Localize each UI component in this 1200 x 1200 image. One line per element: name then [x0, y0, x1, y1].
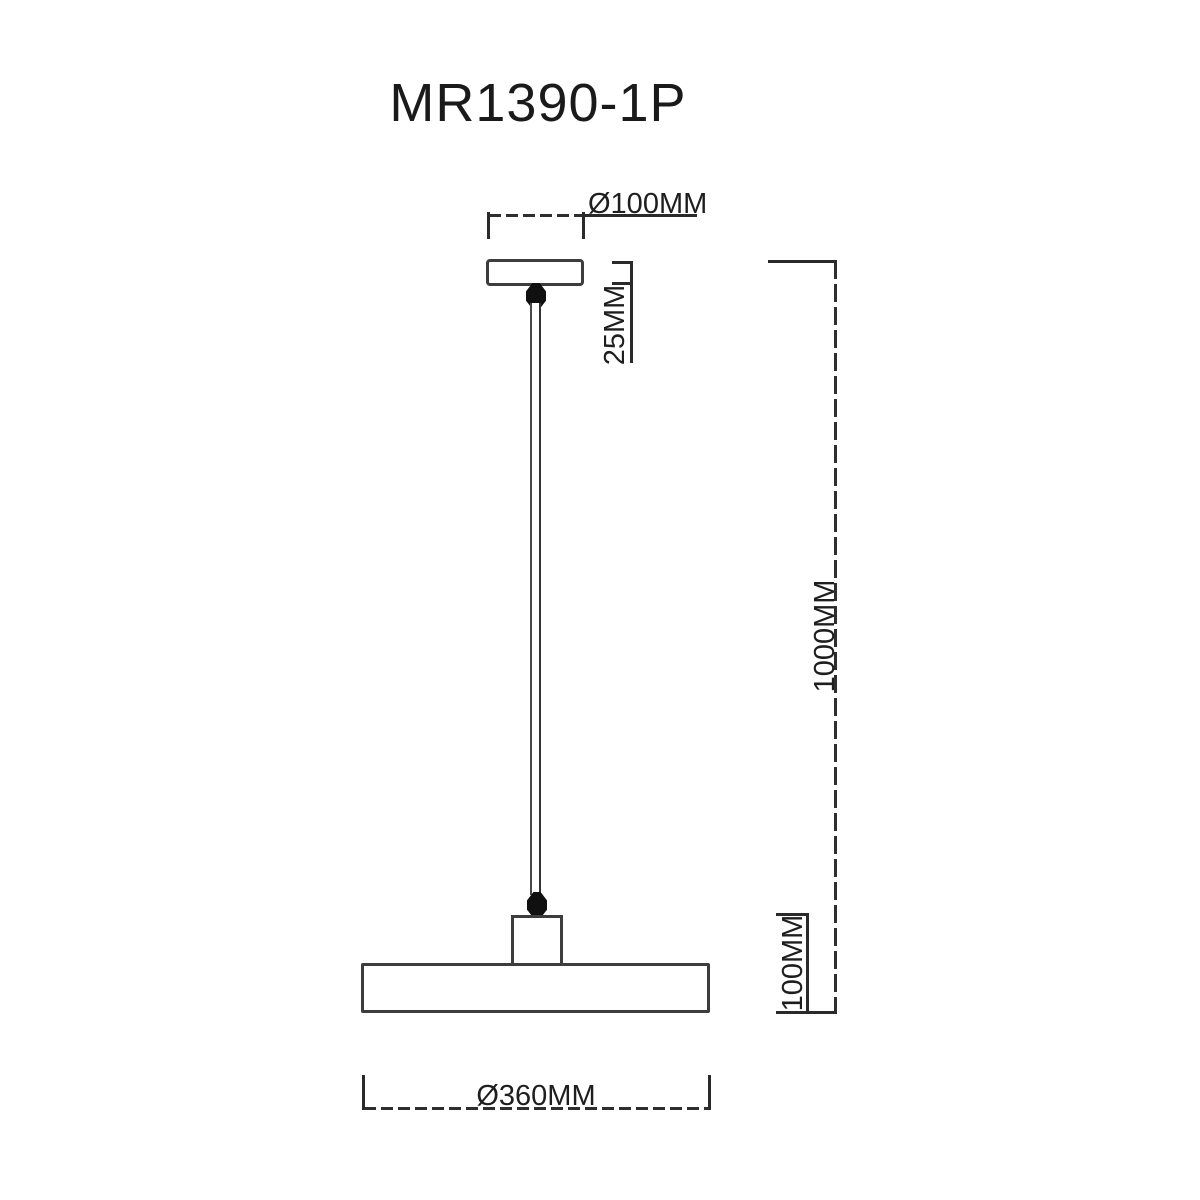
dimension-tick	[582, 212, 585, 239]
shade-diameter-label: Ø360MM	[436, 1080, 636, 1113]
canopy-diameter-label: Ø100MM	[588, 188, 707, 221]
suspension-cable	[530, 303, 541, 895]
dimension-tick	[708, 1075, 711, 1110]
dimension-drawing: MR1390-1P Ø100MM 25MM 1000MM 100MM	[0, 0, 1200, 1200]
dimension-tick	[768, 260, 837, 263]
dimension-tick	[362, 1075, 365, 1110]
product-title: MR1390-1P	[238, 72, 838, 134]
canopy-height-label: 25MM	[600, 275, 630, 375]
shade-height-label: 100MM	[778, 903, 808, 1023]
dimension-tick	[487, 212, 490, 239]
ceiling-canopy	[486, 259, 584, 286]
dimension-tick	[612, 261, 633, 264]
suspension-drop-label: 1000MM	[810, 571, 840, 701]
dimension-line	[489, 214, 583, 217]
socket-holder	[511, 915, 563, 968]
lamp-shade	[361, 963, 710, 1013]
